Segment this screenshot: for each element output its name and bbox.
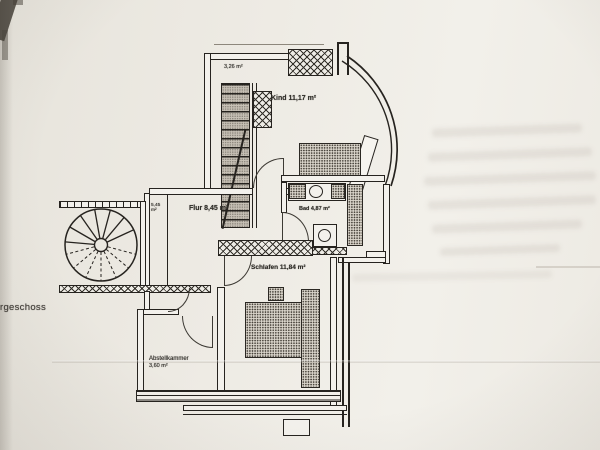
annotation-upper-left-area: 3,26 m² bbox=[224, 64, 243, 70]
photo-corner-mark-2 bbox=[2, 30, 8, 60]
wall-connector-left bbox=[144, 291, 150, 311]
wall-right-step bbox=[338, 257, 386, 263]
roof-overhang-line bbox=[214, 44, 324, 45]
door-leaf-schlafen bbox=[224, 256, 225, 286]
door-leaf-abstellkammer bbox=[212, 316, 213, 348]
door-arc-abstellkammer bbox=[182, 316, 213, 348]
wall-schlafen-right bbox=[330, 257, 337, 409]
wall-schlafen-left bbox=[217, 287, 225, 394]
door-arc-kind bbox=[253, 158, 283, 188]
wall-kind-flur-left bbox=[149, 188, 253, 195]
wall-bad-left-upper bbox=[281, 182, 287, 213]
room-label-schlafen: Schlafen 11,84 m² bbox=[251, 264, 306, 271]
photo-left-edge-shadow bbox=[0, 0, 13, 450]
door-arc-schlafen bbox=[224, 256, 252, 286]
terrace-edge bbox=[183, 405, 347, 411]
paper-crease-main bbox=[52, 360, 600, 363]
spiral-staircase bbox=[60, 201, 142, 287]
annotation-duct-area-line2: m² bbox=[151, 208, 160, 213]
balcony-foot bbox=[283, 419, 310, 436]
washer bbox=[289, 184, 306, 199]
wall-abstell-left bbox=[137, 309, 144, 396]
door-leaf-bad bbox=[282, 212, 283, 242]
chimney-shaft bbox=[288, 49, 333, 76]
door-arc-flur bbox=[168, 288, 190, 312]
window-band-bottom bbox=[136, 390, 341, 402]
toilet bbox=[318, 229, 331, 242]
washbasin bbox=[309, 185, 323, 198]
photo-corner-mark-3 bbox=[13, 0, 23, 5]
paper-crease-right bbox=[536, 266, 600, 268]
room-label-bad: Bad 4,87 m² bbox=[299, 206, 330, 212]
outer-right-line-2 bbox=[348, 263, 350, 427]
counter-cabinet bbox=[331, 184, 345, 199]
duct-shaft bbox=[253, 91, 272, 128]
room-label-abstellkammer-area: 3,60 m² bbox=[149, 363, 189, 370]
bed-schlafen bbox=[245, 302, 305, 358]
room-label-abstellkammer: Abstellkammer 3,60 m² bbox=[149, 356, 189, 370]
door-arc-bad bbox=[282, 212, 309, 242]
wall-left-upper bbox=[204, 53, 211, 194]
wardrobe-wall-band bbox=[218, 240, 313, 256]
wall-top bbox=[204, 53, 290, 60]
bed-side-strip bbox=[301, 289, 320, 388]
annotation-duct-area: 5,45 m² bbox=[151, 203, 160, 213]
page-photo: 3,26 m² Kind 11,17 m² 5,45 m² Flur 8,45 … bbox=[0, 0, 600, 450]
outer-right-line-1 bbox=[342, 257, 344, 427]
room-label-flur: Flur 8,45 m² bbox=[189, 205, 228, 212]
cushion bbox=[268, 287, 284, 301]
bed-kind bbox=[299, 143, 361, 177]
room-label-kind: Kind 11,17 m² bbox=[271, 95, 316, 102]
wall-kind-bad bbox=[281, 175, 385, 182]
terrace-line bbox=[183, 414, 347, 415]
wall-stub-cap bbox=[337, 42, 349, 44]
duct-divider-line bbox=[167, 194, 168, 291]
shower bbox=[347, 184, 363, 246]
